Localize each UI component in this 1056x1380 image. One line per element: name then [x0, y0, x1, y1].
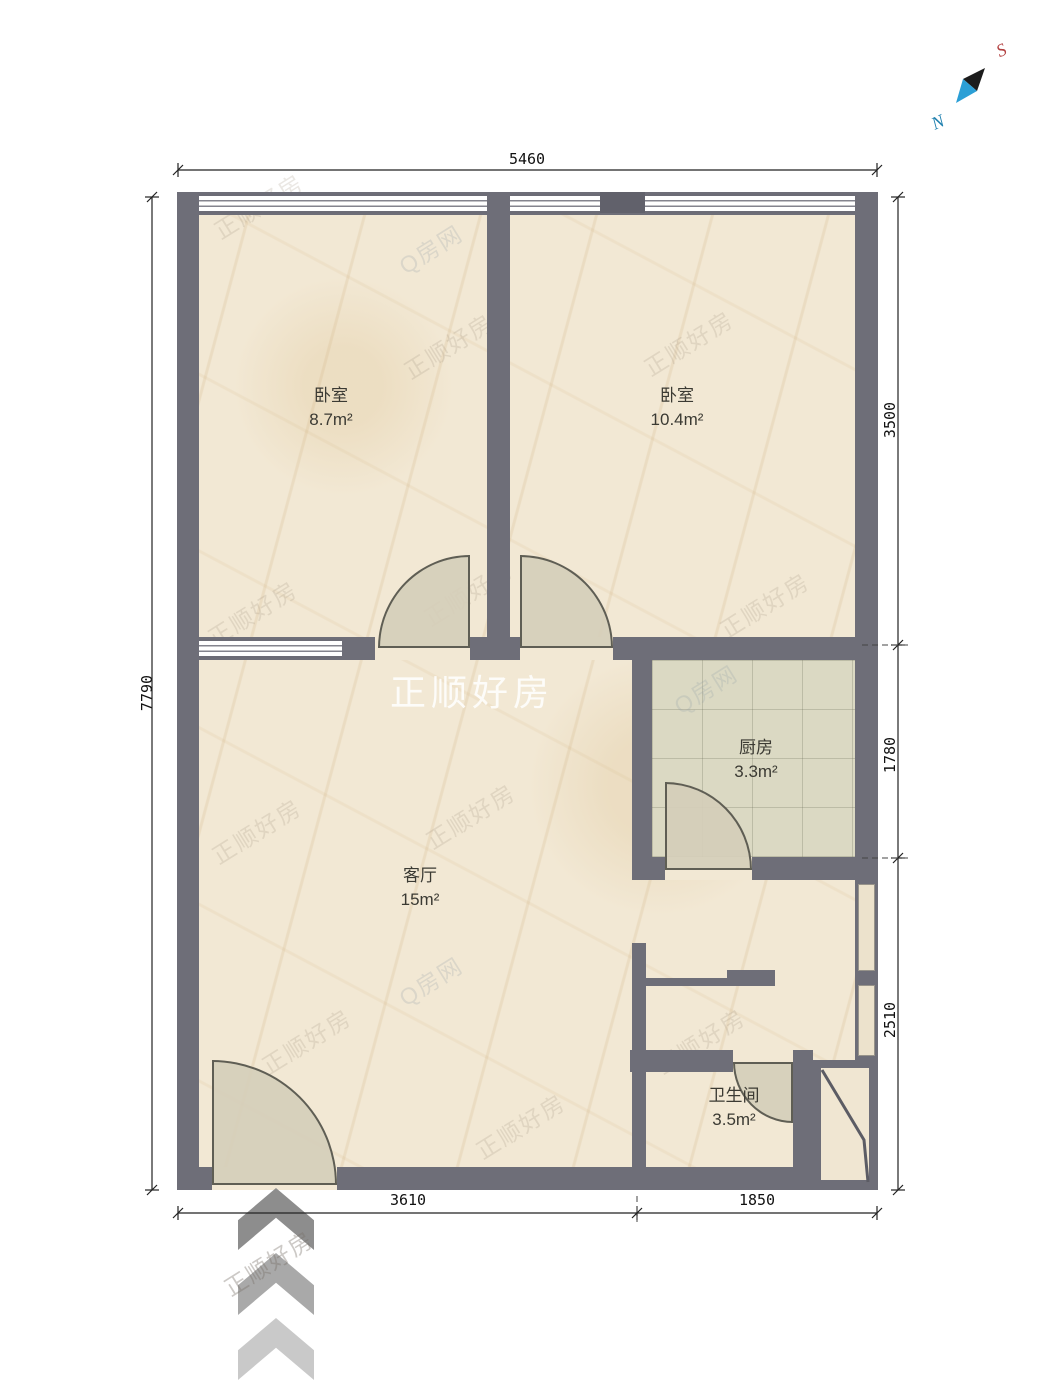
wall-bathroom-right — [793, 1050, 813, 1190]
compass-south-label: S — [993, 39, 1010, 62]
room-label-bedroom-left: 卧室 8.7m² — [309, 384, 352, 432]
room-area: 10.4m² — [651, 408, 704, 432]
wall-corridor-counter — [642, 978, 775, 986]
wall-corridor-counter-step — [727, 970, 775, 978]
compass-north-label: N — [928, 110, 948, 134]
wall-kitchen-left — [632, 660, 652, 880]
dim-bottom-1: 3610 — [390, 1191, 426, 1209]
compass-needle — [956, 68, 985, 103]
window-top-left — [199, 194, 487, 213]
room-label-living-room: 客厅 15m² — [401, 864, 440, 912]
room-name: 卫生间 — [709, 1084, 760, 1108]
window-right-upper — [858, 884, 875, 971]
dim-right-2: 1780 — [881, 737, 899, 773]
watermark-brand-center: 正顺好房 — [390, 664, 554, 716]
room-name: 厨房 — [734, 736, 777, 760]
dim-right-3: 2510 — [881, 1002, 899, 1038]
entrance-arrow-chevron-3 — [238, 1318, 314, 1380]
window-right-lower — [858, 985, 875, 1056]
room-label-bathroom: 卫生间 3.5m² — [709, 1084, 760, 1132]
dim-top: 5460 — [509, 150, 545, 168]
column-top-window — [600, 192, 645, 213]
room-name: 卧室 — [651, 384, 704, 408]
window-top-right — [510, 194, 855, 213]
room-area: 15m² — [401, 888, 440, 912]
room-area: 8.7m² — [309, 408, 352, 432]
window-mid-left — [199, 639, 342, 658]
floor-plan-canvas: 正顺好房 正顺好房 Q房网 正顺好房 正顺好房 正顺好房 正顺好房 Q房网 正顺… — [0, 0, 1056, 1380]
room-area: 3.3m² — [734, 760, 777, 784]
room-name: 客厅 — [401, 864, 440, 888]
dim-left: 7790 — [138, 675, 156, 711]
wall-left — [177, 192, 199, 1190]
room-name: 卧室 — [309, 384, 352, 408]
wall-bedroom-divider — [487, 215, 510, 660]
room-label-kitchen: 厨房 3.3m² — [734, 736, 777, 784]
room-area: 3.5m² — [709, 1108, 760, 1132]
duct-shaft-box — [813, 1060, 877, 1188]
dim-right-1: 3500 — [881, 402, 899, 438]
dim-bottom-2: 1850 — [739, 1191, 775, 1209]
room-label-bedroom-right: 卧室 10.4m² — [651, 384, 704, 432]
